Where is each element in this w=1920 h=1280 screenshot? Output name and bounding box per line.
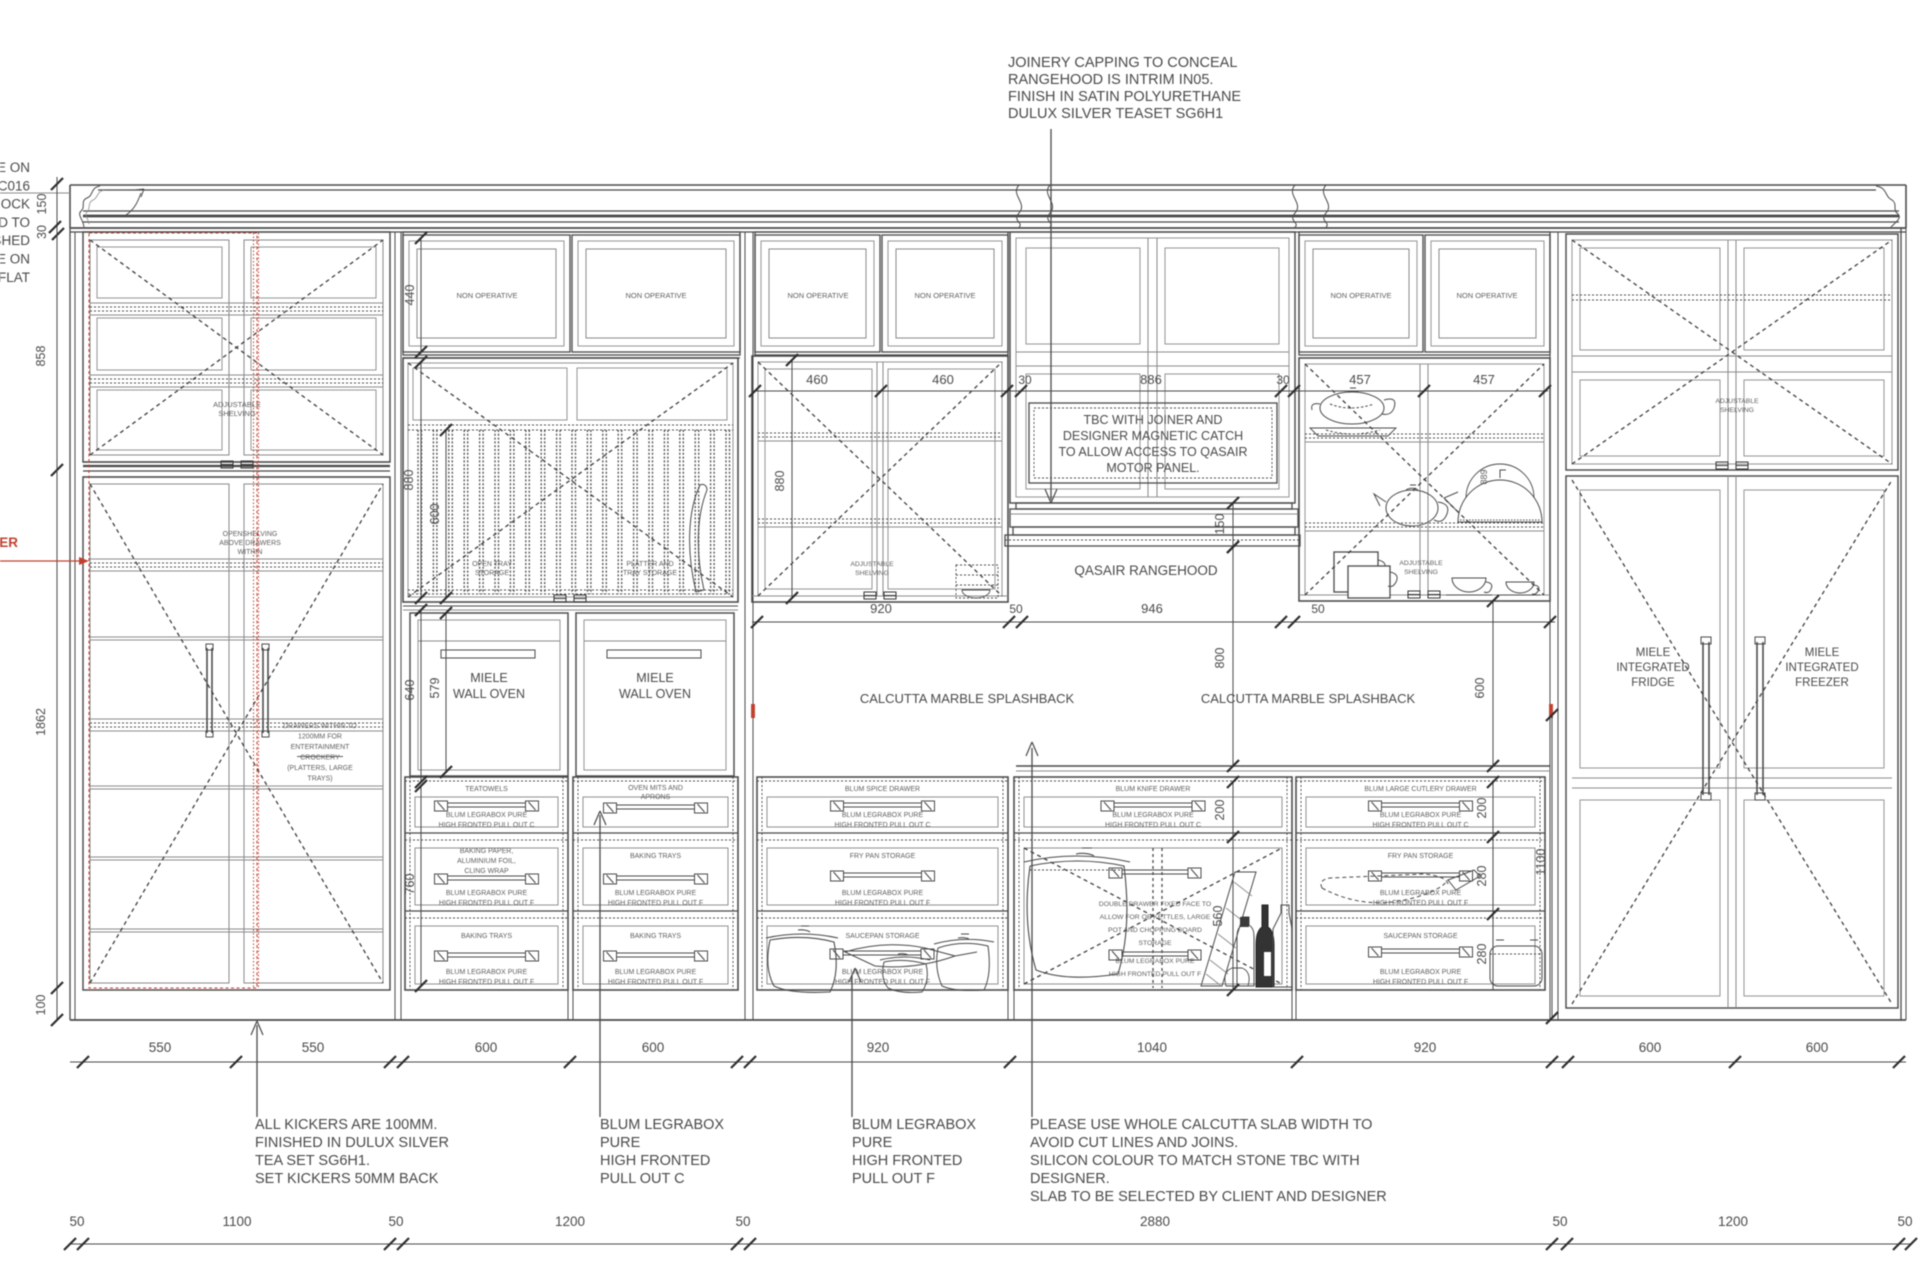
svg-text:DESIGNER.: DESIGNER. <box>1030 1171 1110 1187</box>
svg-text:ADJUSTABLE: ADJUSTABLE <box>850 561 894 568</box>
svg-text:BAKING TRAYS: BAKING TRAYS <box>461 933 512 940</box>
svg-text:SHELVING: SHELVING <box>855 570 889 577</box>
svg-text:CROCKERY: CROCKERY <box>300 755 340 762</box>
svg-text:BLUM LARGE CUTLERY DRAWER: BLUM LARGE CUTLERY DRAWER <box>1364 786 1476 793</box>
svg-text:1200: 1200 <box>555 1214 585 1229</box>
svg-text:OPENSHELVING: OPENSHELVING <box>223 531 278 538</box>
svg-text:600: 600 <box>428 504 442 525</box>
svg-text:ADJUSTABLE: ADJUSTABLE <box>1399 560 1443 567</box>
svg-text:RANGEHOOD IS INTRIM IN05.: RANGEHOOD IS INTRIM IN05. <box>1008 72 1213 88</box>
svg-text:920: 920 <box>867 1040 890 1055</box>
svg-text:MIELE: MIELE <box>1805 647 1840 659</box>
svg-text:MIELE: MIELE <box>470 671 508 685</box>
svg-text:SHED: SHED <box>0 233 30 248</box>
svg-text:50: 50 <box>69 1214 84 1229</box>
svg-text:OVEN MITS AND: OVEN MITS AND <box>628 785 683 792</box>
svg-text:HIGH FRONTED PULL OUT F: HIGH FRONTED PULL OUT F <box>608 979 703 986</box>
svg-text:BLUM LEGRABOX PURE: BLUM LEGRABOX PURE <box>1380 969 1462 976</box>
svg-text:280: 280 <box>1475 866 1489 887</box>
svg-text:BAKING PAPER,: BAKING PAPER, <box>460 848 514 855</box>
svg-text:600: 600 <box>642 1040 665 1055</box>
svg-text:DESIGNER MAGNETIC CATCH: DESIGNER MAGNETIC CATCH <box>1063 429 1243 443</box>
svg-text:PURE: PURE <box>600 1135 641 1151</box>
svg-text:ENTERTAINMENT: ENTERTAINMENT <box>291 744 351 751</box>
svg-text:280: 280 <box>1475 944 1489 965</box>
svg-text:200: 200 <box>1213 800 1227 821</box>
svg-text:858: 858 <box>34 346 48 367</box>
svg-text:BAKING TRAYS: BAKING TRAYS <box>630 933 681 940</box>
svg-text:579: 579 <box>428 678 442 699</box>
svg-text:PLEASE USE WHOLE CALCUTTA SLAB: PLEASE USE WHOLE CALCUTTA SLAB WIDTH TO <box>1030 1117 1372 1133</box>
svg-text:800: 800 <box>1213 648 1227 669</box>
svg-text:NON OPERATIVE: NON OPERATIVE <box>456 291 517 300</box>
svg-text:BLUM LEGRABOX PURE: BLUM LEGRABOX PURE <box>842 890 924 897</box>
svg-text:FINISH IN SATIN POLYURETHANE: FINISH IN SATIN POLYURETHANE <box>1008 89 1241 105</box>
svg-text:BLUM SPICE DRAWER: BLUM SPICE DRAWER <box>845 786 920 793</box>
svg-text:JOINERY CAPPING TO CONCEAL: JOINERY CAPPING TO CONCEAL <box>1008 55 1237 71</box>
svg-text:889: 889 <box>1479 469 1489 484</box>
svg-text:FLAT: FLAT <box>0 270 30 285</box>
svg-text:50: 50 <box>1311 602 1325 616</box>
svg-text:HIGH FRONTED: HIGH FRONTED <box>600 1153 710 1169</box>
svg-text:ER: ER <box>0 535 18 550</box>
svg-text:100: 100 <box>34 995 48 1016</box>
svg-text:APRONS: APRONS <box>641 794 671 801</box>
svg-text:E ON: E ON <box>0 252 30 267</box>
svg-text:600: 600 <box>475 1040 498 1055</box>
svg-text:PLATTER AND: PLATTER AND <box>626 561 673 568</box>
svg-text:1040: 1040 <box>1137 1040 1167 1055</box>
svg-text:BLUM LEGRABOX PURE: BLUM LEGRABOX PURE <box>446 812 528 819</box>
svg-text:NON OPERATIVE: NON OPERATIVE <box>1456 291 1517 300</box>
svg-text:MIELE: MIELE <box>636 671 674 685</box>
svg-text:E ON: E ON <box>0 160 30 175</box>
svg-text:INTEGRATED: INTEGRATED <box>1785 662 1858 674</box>
svg-text:50: 50 <box>1897 1214 1912 1229</box>
svg-text:FRY PAN STORAGE: FRY PAN STORAGE <box>850 853 916 860</box>
svg-text:CALCUTTA MARBLE SPLASHBACK: CALCUTTA MARBLE SPLASHBACK <box>860 691 1075 706</box>
svg-text:600: 600 <box>1806 1040 1829 1055</box>
svg-text:50: 50 <box>1552 1214 1567 1229</box>
svg-text:HIGH FRONTED PULL OUT F: HIGH FRONTED PULL OUT F <box>608 900 703 907</box>
svg-text:STORAGE: STORAGE <box>475 570 509 577</box>
svg-text:CLING WRAP: CLING WRAP <box>464 868 509 875</box>
svg-text:BLUM LEGRABOX PURE: BLUM LEGRABOX PURE <box>1116 958 1195 965</box>
svg-text:HIGH FRONTED: HIGH FRONTED <box>852 1153 962 1169</box>
svg-text:HIGH FRONTED PULL OUT F: HIGH FRONTED PULL OUT F <box>835 979 930 986</box>
svg-text:MIELE: MIELE <box>1636 647 1671 659</box>
svg-text:HIGH FRONTED PULL OUT F: HIGH FRONTED PULL OUT F <box>1109 971 1202 978</box>
svg-text:BLUM LEGRABOX PURE: BLUM LEGRABOX PURE <box>446 969 528 976</box>
svg-text:ALLOW FOR OE KETTLES, LARGE: ALLOW FOR OE KETTLES, LARGE <box>1100 914 1211 921</box>
svg-text:HIGH FRONTED PULL OUT F: HIGH FRONTED PULL OUT F <box>1373 900 1468 907</box>
svg-text:BAKING TRAYS: BAKING TRAYS <box>630 853 681 860</box>
svg-text:TEA SET SG6H1.: TEA SET SG6H1. <box>255 1153 370 1169</box>
svg-text:SHELVING: SHELVING <box>1404 569 1438 576</box>
svg-text:BLUM LEGRABOX PURE: BLUM LEGRABOX PURE <box>1380 812 1462 819</box>
svg-text:(PLATTERS, LARGE: (PLATTERS, LARGE <box>287 765 353 772</box>
svg-text:DULUX SILVER TEASET SG6H1: DULUX SILVER TEASET SG6H1 <box>1008 106 1223 122</box>
svg-text:POT AND CHOPPING BOARD: POT AND CHOPPING BOARD <box>1108 927 1202 934</box>
svg-text:640: 640 <box>403 680 417 701</box>
svg-text:BLUM LEGRABOX: BLUM LEGRABOX <box>600 1117 724 1133</box>
svg-text:FREEZER: FREEZER <box>1795 677 1849 689</box>
svg-text:150: 150 <box>35 194 49 215</box>
svg-text:HIGH FRONTED PULL OUT F: HIGH FRONTED PULL OUT F <box>1373 979 1468 986</box>
svg-text:FINISHED IN DULUX SILVER: FINISHED IN DULUX SILVER <box>255 1135 449 1151</box>
svg-text:920: 920 <box>870 601 892 616</box>
svg-text:1100: 1100 <box>1534 849 1548 876</box>
svg-text:TBC WITH JOINER AND: TBC WITH JOINER AND <box>1084 413 1223 427</box>
svg-text:30: 30 <box>1276 373 1290 387</box>
svg-text:HIGH FRONTED PULL OUT C: HIGH FRONTED PULL OUT C <box>834 822 930 829</box>
svg-text:OPEN TRAY: OPEN TRAY <box>472 561 512 568</box>
svg-text:WALL OVEN: WALL OVEN <box>453 687 525 701</box>
svg-text:440: 440 <box>403 285 417 306</box>
svg-text:ROCK: ROCK <box>0 197 30 212</box>
svg-text:50: 50 <box>1009 602 1023 616</box>
svg-text:ABOVE DRAWERS: ABOVE DRAWERS <box>219 540 281 547</box>
svg-text:1100: 1100 <box>222 1214 251 1229</box>
svg-text:NON OPERATIVE: NON OPERATIVE <box>914 291 975 300</box>
svg-text:TEATOWELS: TEATOWELS <box>465 786 508 793</box>
svg-text:946: 946 <box>1141 601 1163 616</box>
svg-text:BLUM LEGRABOX: BLUM LEGRABOX <box>852 1117 976 1133</box>
svg-text:HIGH FRONTED PULL OUT F: HIGH FRONTED PULL OUT F <box>439 900 534 907</box>
svg-text:SAUCEPAN STORAGE: SAUCEPAN STORAGE <box>845 933 919 940</box>
svg-text:460: 460 <box>806 372 828 387</box>
svg-text:INTEGRATED: INTEGRATED <box>1616 662 1689 674</box>
svg-text:MOTOR PANEL.: MOTOR PANEL. <box>1106 461 1199 475</box>
svg-text:HIGH FRONTED PULL OUT C: HIGH FRONTED PULL OUT C <box>1105 822 1201 829</box>
svg-text:C016: C016 <box>0 178 30 193</box>
svg-text:760: 760 <box>403 874 417 895</box>
svg-text:TRAY STORAGE: TRAY STORAGE <box>623 570 677 577</box>
svg-text:PULL OUT F: PULL OUT F <box>852 1171 935 1187</box>
svg-text:ADJUSTABLE: ADJUSTABLE <box>1715 398 1759 405</box>
svg-text:NON OPERATIVE: NON OPERATIVE <box>1330 291 1391 300</box>
svg-text:NON OPERATIVE: NON OPERATIVE <box>625 291 686 300</box>
svg-text:920: 920 <box>1414 1040 1437 1055</box>
svg-text:600: 600 <box>1473 678 1487 699</box>
svg-text:QASAIR RANGEHOOD: QASAIR RANGEHOOD <box>1074 563 1218 578</box>
svg-text:SILICON COLOUR TO MATCH STONE: SILICON COLOUR TO MATCH STONE TBC WITH <box>1030 1153 1360 1169</box>
svg-text:BLUM KNIFE DRAWER: BLUM KNIFE DRAWER <box>1116 786 1191 793</box>
svg-text:550: 550 <box>149 1040 172 1055</box>
svg-text:550: 550 <box>302 1040 325 1055</box>
svg-text:BLUM LEGRABOX PURE: BLUM LEGRABOX PURE <box>842 812 924 819</box>
svg-text:600: 600 <box>1639 1040 1662 1055</box>
svg-text:TRAYS): TRAYS) <box>307 776 332 783</box>
svg-text:30: 30 <box>1018 373 1032 387</box>
svg-text:BLUM LEGRABOX PURE: BLUM LEGRABOX PURE <box>615 890 697 897</box>
svg-text:560: 560 <box>1211 906 1225 927</box>
svg-text:HIGH FRONTED PULL OUT C: HIGH FRONTED PULL OUT C <box>438 822 534 829</box>
svg-text:STORAGE: STORAGE <box>1138 940 1172 947</box>
svg-text:1200: 1200 <box>1718 1214 1748 1229</box>
svg-text:SLAB TO BE SELECTED BY CLIENT: SLAB TO BE SELECTED BY CLIENT AND DESIGN… <box>1030 1189 1387 1205</box>
svg-text:457: 457 <box>1473 372 1495 387</box>
svg-text:SAUCEPAN STORAGE: SAUCEPAN STORAGE <box>1383 933 1457 940</box>
svg-text:DRAWERS WITHIN TO: DRAWERS WITHIN TO <box>283 723 357 730</box>
svg-text:50: 50 <box>388 1214 403 1229</box>
svg-text:2880: 2880 <box>1140 1214 1170 1229</box>
svg-text:NON OPERATIVE: NON OPERATIVE <box>787 291 848 300</box>
svg-text:150: 150 <box>1213 514 1227 535</box>
svg-text:1200MM FOR: 1200MM FOR <box>298 734 342 741</box>
svg-text:DOUBLE DRAWER FIXED FACE TO: DOUBLE DRAWER FIXED FACE TO <box>1099 901 1211 908</box>
svg-text:FRY PAN STORAGE: FRY PAN STORAGE <box>1388 853 1454 860</box>
svg-text:BLUM LEGRABOX PURE: BLUM LEGRABOX PURE <box>1112 812 1194 819</box>
svg-text:HIGH FRONTED PULL OUT F: HIGH FRONTED PULL OUT F <box>439 979 534 986</box>
svg-text:1862: 1862 <box>34 708 48 736</box>
svg-text:TO ALLOW ACCESS TO QASAIR: TO ALLOW ACCESS TO QASAIR <box>1059 445 1248 459</box>
svg-text:SHELVING: SHELVING <box>1720 407 1754 414</box>
svg-text:HIGH FRONTED PULL OUT C: HIGH FRONTED PULL OUT C <box>1372 822 1468 829</box>
svg-text:880: 880 <box>402 470 416 491</box>
svg-text:HIGH FRONTED PULL OUT F: HIGH FRONTED PULL OUT F <box>835 900 930 907</box>
svg-text:BLUM LEGRABOX PURE: BLUM LEGRABOX PURE <box>446 890 528 897</box>
svg-text:D TO: D TO <box>0 215 30 230</box>
svg-text:886: 886 <box>1140 372 1162 387</box>
svg-text:460: 460 <box>932 372 954 387</box>
svg-text:457: 457 <box>1349 372 1371 387</box>
svg-text:SET KICKERS 50MM BACK: SET KICKERS 50MM BACK <box>255 1171 439 1187</box>
svg-text:30: 30 <box>35 225 49 239</box>
svg-text:ALUMINIUM FOIL,: ALUMINIUM FOIL, <box>457 858 516 865</box>
svg-text:AVOID CUT LINES AND JOINS.: AVOID CUT LINES AND JOINS. <box>1030 1135 1238 1151</box>
svg-text:880: 880 <box>773 471 787 492</box>
svg-text:50: 50 <box>735 1214 750 1229</box>
svg-text:WALL OVEN: WALL OVEN <box>619 687 691 701</box>
svg-text:200: 200 <box>1475 798 1489 819</box>
svg-text:BLUM LEGRABOX PURE: BLUM LEGRABOX PURE <box>615 969 697 976</box>
svg-text:SHELVING: SHELVING <box>218 409 256 418</box>
svg-text:PURE: PURE <box>852 1135 893 1151</box>
svg-text:PULL OUT C: PULL OUT C <box>600 1171 685 1187</box>
svg-text:ALL KICKERS ARE 100MM.: ALL KICKERS ARE 100MM. <box>255 1117 437 1133</box>
svg-text:FRIDGE: FRIDGE <box>1631 677 1675 689</box>
